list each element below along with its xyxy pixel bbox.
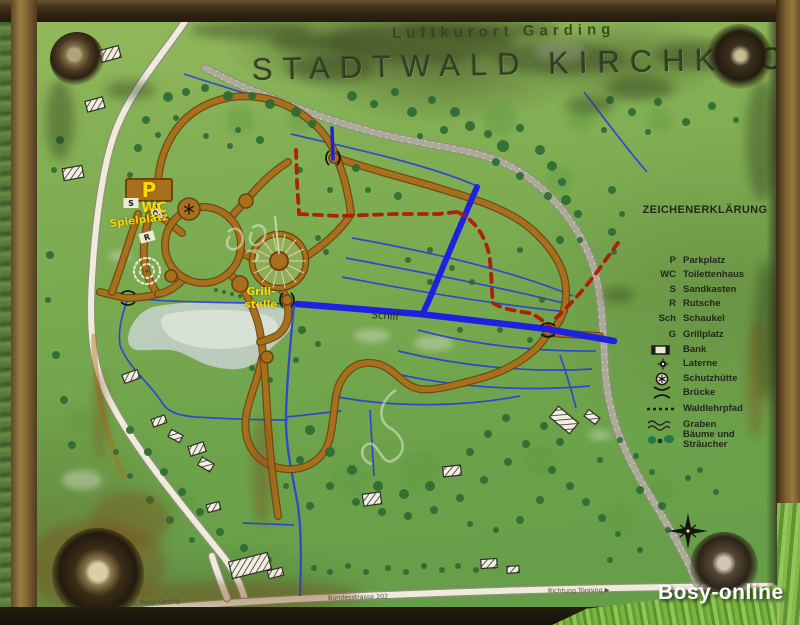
watermark: Bosy-online (658, 581, 784, 605)
legend-row: Schutzhütte (636, 371, 774, 386)
svg-text:stelle: stelle (245, 299, 278, 311)
dashed-line-icon (644, 401, 676, 417)
svg-text:Richtung Tönning ▶: Richtung Tönning ▶ (548, 587, 610, 595)
legend-key: G (636, 329, 683, 340)
legend-label: Brücke (683, 388, 715, 398)
legend-key: S (636, 284, 683, 295)
legend-label: Bäume und Sträucher (683, 430, 771, 450)
legend-row: Bank (636, 342, 774, 357)
trees-icon (644, 432, 676, 448)
wood-frame-right (776, 0, 800, 515)
legend-label: Graben (683, 420, 716, 430)
svg-text:S: S (128, 199, 134, 208)
bridge-icon (644, 385, 676, 401)
wood-frame-left (11, 0, 37, 625)
wood-frame-top (0, 0, 800, 22)
svg-text:Schilf: Schilf (371, 310, 399, 323)
legend-label: Rutsche (683, 299, 720, 309)
legend-row: SchSchaukel (636, 311, 774, 326)
legend-label: Schaukel (683, 314, 725, 324)
wavy-lines-icon (644, 417, 676, 433)
lantern-icon (644, 356, 676, 372)
legend-key: R (636, 298, 683, 309)
svg-text:Spielplatz: Spielplatz (109, 211, 169, 230)
legend-label: Parkplatz (683, 256, 725, 266)
legend-row: Brücke (636, 385, 774, 400)
svg-text:Bundesstrasse 202: Bundesstrasse 202 (328, 593, 388, 602)
legend-key: P (636, 255, 683, 266)
legend-label: Laterne (683, 359, 717, 369)
bolt-top-right (706, 24, 772, 90)
legend-row: PParkplatz (636, 253, 774, 268)
legend-label: Waldlehrpfad (683, 404, 743, 414)
legend-label: Grillplatz (683, 330, 724, 340)
bolt-top-left (50, 32, 104, 86)
legend-label: Sandkasten (683, 285, 736, 295)
grass-right-edge (777, 503, 800, 625)
legend-row: Laterne (636, 356, 774, 371)
legend-row: Bäume und Sträucher (636, 432, 774, 447)
legend-row: RRutsche (636, 296, 774, 311)
legend-label: Bank (683, 345, 706, 355)
svg-text:P: P (142, 178, 157, 202)
legend-title: ZEICHENERKLÄRUNG (636, 204, 774, 216)
park-sign-photo: S Sch RPWCSpielplatzGrill-stelleSchilf10… (0, 0, 800, 625)
legend-key: WC (636, 269, 683, 280)
legend-row: WCToilettenhaus (636, 267, 774, 282)
legend-row: GGrillplatz (636, 327, 774, 342)
legend-label: Toilettenhaus (683, 270, 744, 280)
legend-row: SSandkasten (636, 282, 774, 297)
legend-key: Sch (636, 313, 683, 324)
map-legend: ZEICHENERKLÄRUNG PParkplatzWCToilettenha… (636, 204, 774, 216)
svg-text:Grill-: Grill- (247, 286, 276, 298)
legend-label: Schutzhütte (683, 374, 737, 384)
map-labels: PWCSpielplatzGrill-stelleSchilf1000Richt… (100, 178, 610, 609)
legend-row: Waldlehrpfad (636, 401, 774, 416)
